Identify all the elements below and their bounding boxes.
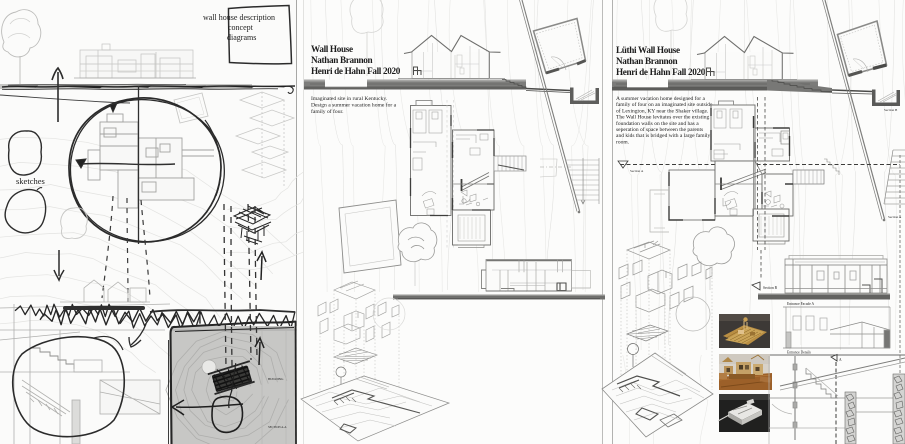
svg-text:Wall House: Wall House	[311, 44, 353, 54]
svg-text:sketches: sketches	[16, 176, 45, 186]
svg-text:diagrams: diagrams	[227, 33, 256, 42]
svg-text:family of four on an imaginate: family of four on an imaginated site out…	[616, 101, 713, 108]
svg-text:BUILDING: BUILDING	[268, 377, 284, 381]
svg-text:of Lexington, KY near the Shak: of Lexington, KY near the Shaker village…	[616, 107, 709, 114]
svg-text:wall house description: wall house description	[203, 13, 275, 22]
svg-text:Nathan Brannon: Nathan Brannon	[616, 56, 677, 66]
svg-text:Lüthi Wall House: Lüthi Wall House	[616, 45, 680, 55]
svg-text:Design a summer vacation home: Design a summer vacation home for a	[311, 101, 397, 108]
svg-text:Entrance Facade A: Entrance Facade A	[787, 302, 815, 306]
svg-text:SECTION A-A: SECTION A-A	[268, 425, 287, 429]
svg-text:foundation walls on the site a: foundation walls on the site and has a	[616, 120, 699, 127]
svg-text:Nathan Brannon: Nathan Brannon	[311, 55, 372, 65]
svg-text:family of four.: family of four.	[311, 108, 344, 115]
svg-text:Henri de Hahn Fall 2020: Henri de Hahn Fall 2020	[311, 66, 401, 76]
svg-text:Henri de Hahn Fall 2020: Henri de Hahn Fall 2020	[616, 67, 706, 77]
svg-text:Imaginated site in rural Kentu: Imaginated site in rural Kentucky.	[311, 96, 388, 102]
svg-text:Section B: Section B	[884, 108, 898, 112]
svg-text:Section B: Section B	[763, 286, 778, 290]
svg-text:concept: concept	[228, 23, 254, 32]
svg-text:seperation of space between th: seperation of space between the parents	[616, 126, 703, 133]
svg-text:Section A: Section A	[630, 169, 644, 173]
svg-text:A: A	[839, 358, 842, 362]
svg-text:The Wall House levitates over: The Wall House levitates over the existi…	[616, 115, 709, 121]
svg-text:Entrance Details: Entrance Details	[787, 351, 811, 355]
svg-text:A summer vacation home designe: A summer vacation home designed for a	[616, 95, 705, 102]
svg-text:room.: room.	[616, 139, 630, 145]
svg-text:and kids that is bridged with: and kids that is bridged with a large fa…	[616, 132, 711, 139]
